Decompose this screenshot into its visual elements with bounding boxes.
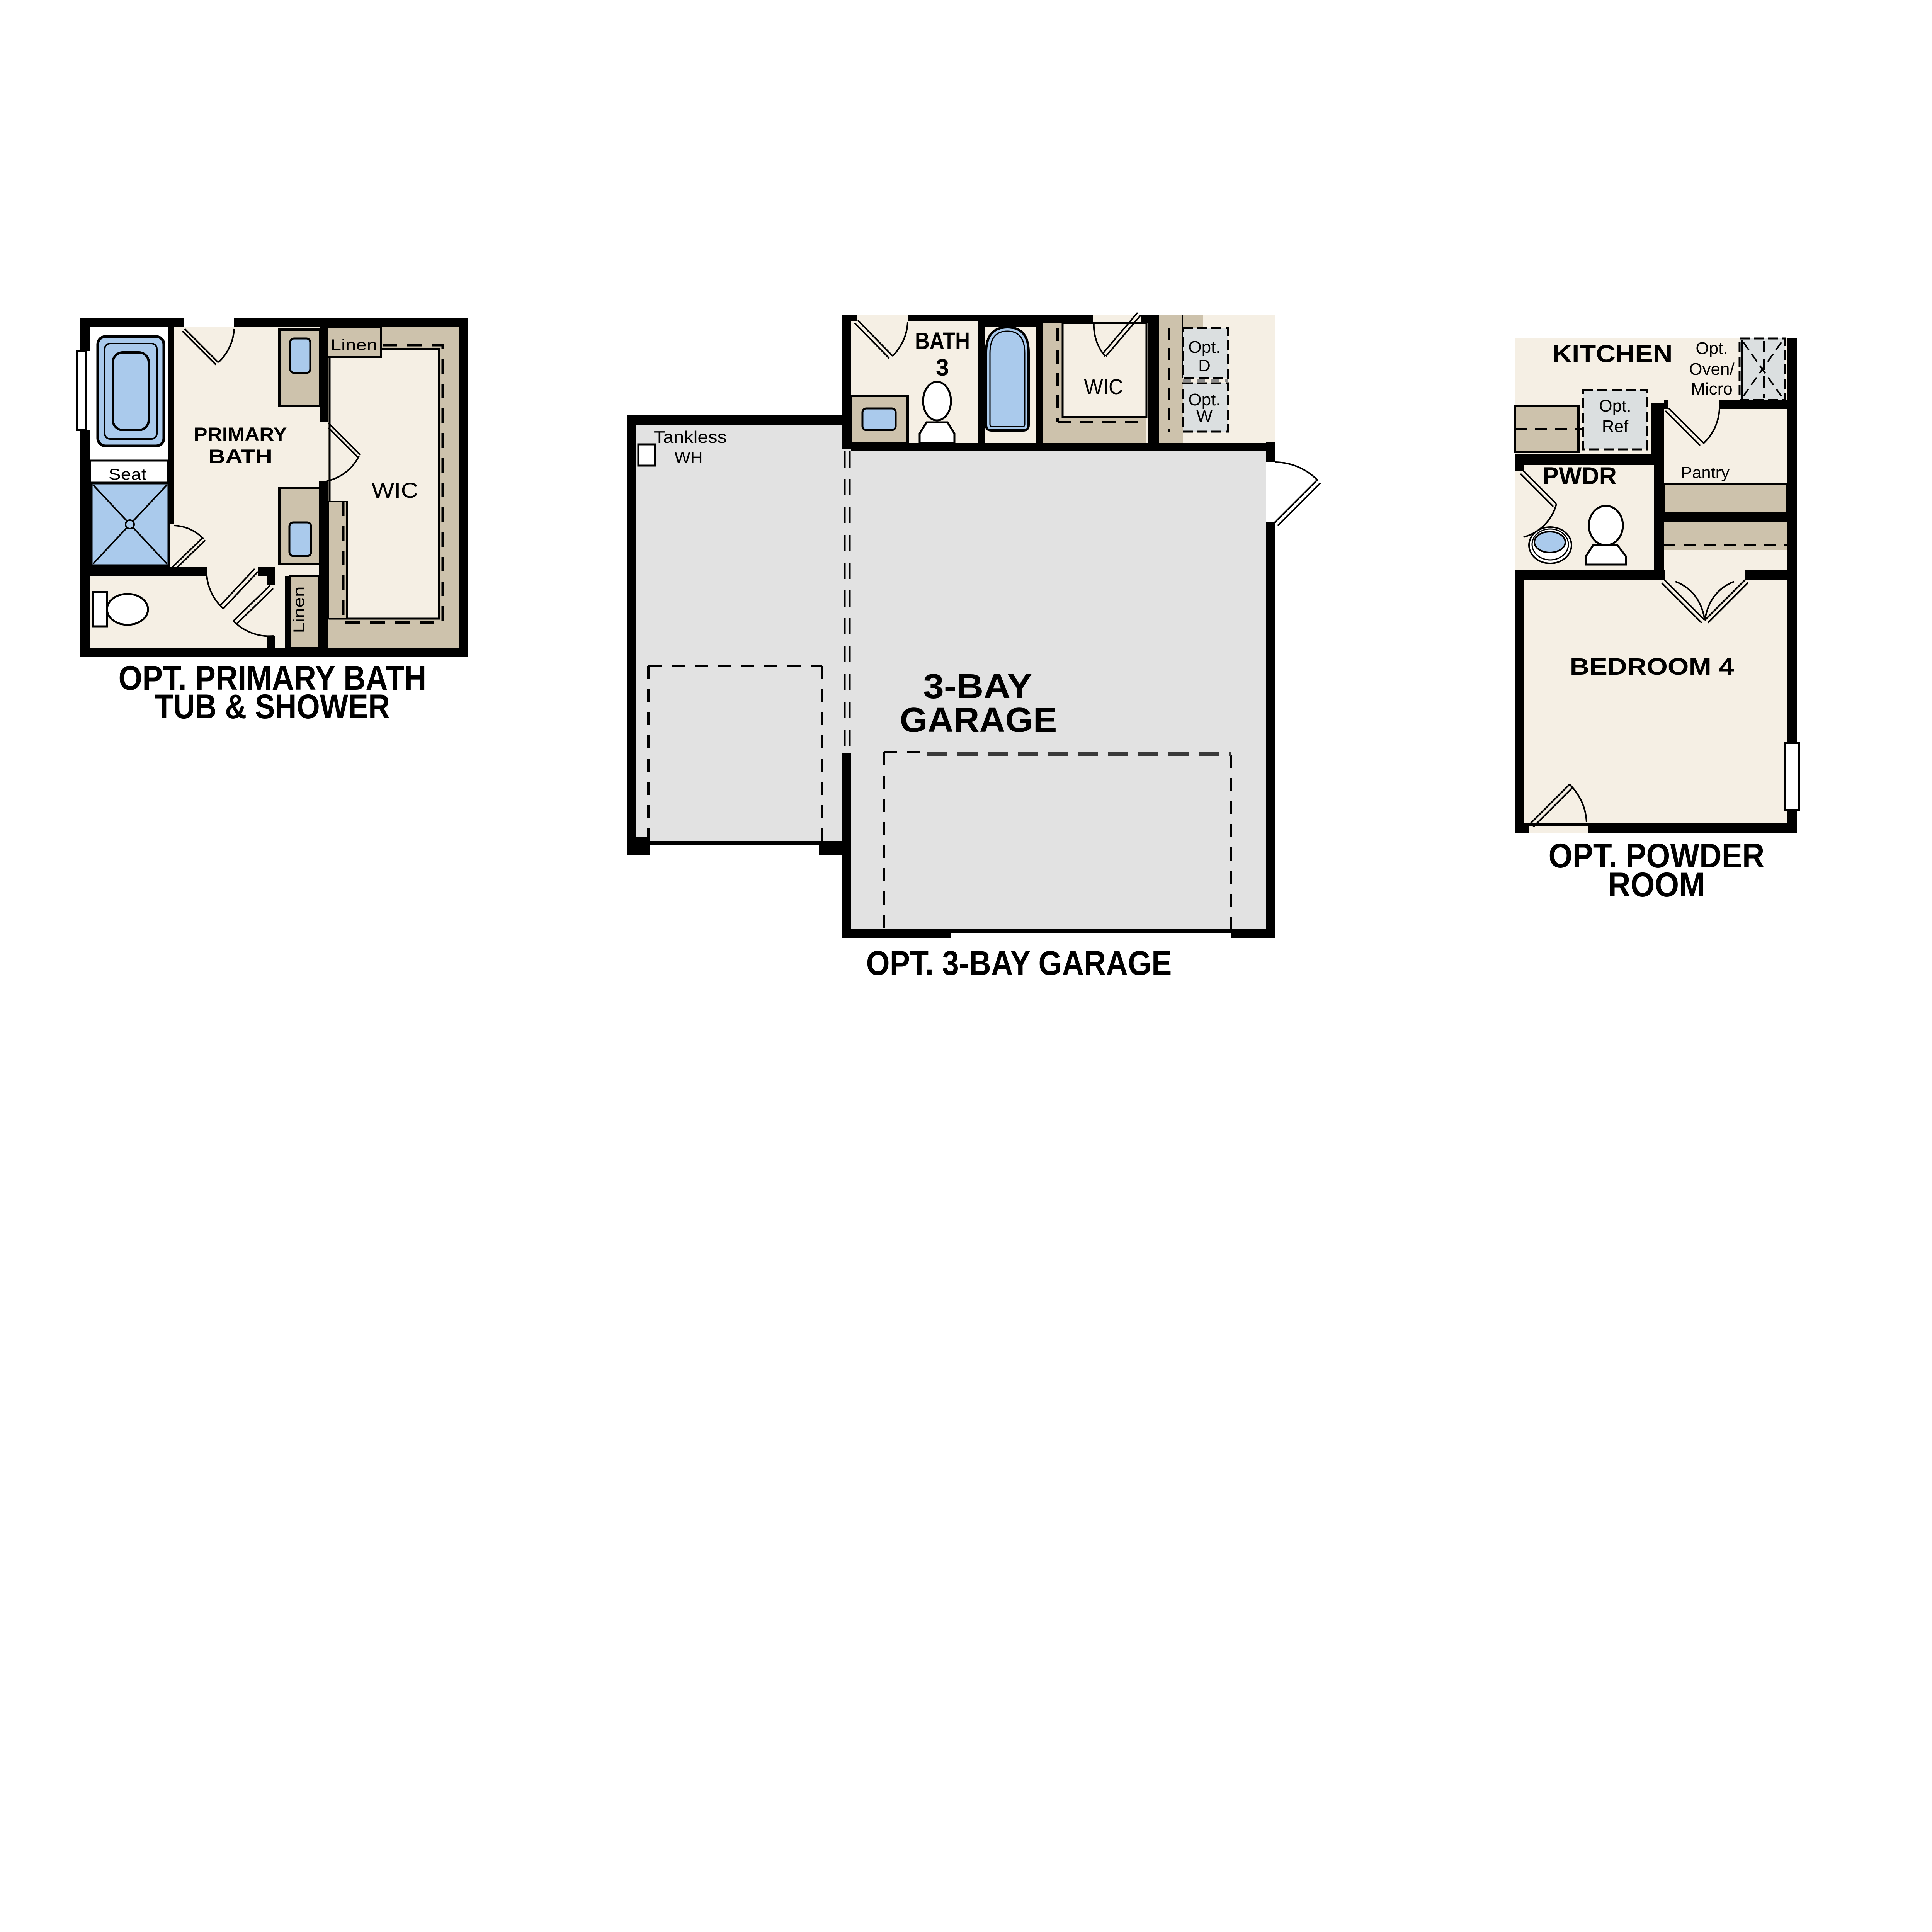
svg-text:WIC: WIC: [372, 478, 418, 502]
svg-text:Tankless: Tankless: [654, 428, 727, 447]
svg-text:Pantry: Pantry: [1681, 463, 1730, 481]
svg-text:Ref: Ref: [1602, 417, 1629, 436]
svg-text:BATH: BATH: [915, 328, 970, 354]
svg-text:PWDR: PWDR: [1543, 463, 1617, 490]
svg-text:Opt.: Opt.: [1188, 390, 1220, 409]
svg-text:WH: WH: [674, 448, 702, 467]
svg-text:Linen: Linen: [291, 587, 308, 633]
svg-text:OPT. 3-BAY GARAGE: OPT. 3-BAY GARAGE: [866, 944, 1172, 982]
svg-text:GARAGE: GARAGE: [900, 701, 1057, 740]
svg-text:BEDROOM 4: BEDROOM 4: [1570, 653, 1734, 680]
svg-text:TUB & SHOWER: TUB & SHOWER: [155, 687, 390, 726]
svg-text:PRIMARY: PRIMARY: [194, 423, 287, 445]
svg-text:W: W: [1196, 407, 1213, 426]
svg-text:Oven/: Oven/: [1689, 360, 1735, 379]
svg-text:Micro: Micro: [1691, 379, 1733, 398]
svg-text:Opt.: Opt.: [1696, 339, 1728, 358]
svg-text:KITCHEN: KITCHEN: [1553, 340, 1673, 367]
svg-text:ROOM: ROOM: [1608, 865, 1705, 904]
svg-text:3: 3: [936, 354, 949, 381]
svg-text:Seat: Seat: [109, 466, 146, 483]
svg-text:3-BAY: 3-BAY: [923, 667, 1032, 706]
svg-text:BATH: BATH: [208, 446, 272, 467]
svg-text:Linen: Linen: [331, 337, 378, 354]
svg-text:Opt.: Opt.: [1599, 396, 1631, 415]
svg-text:WIC: WIC: [1084, 374, 1123, 399]
svg-text:Opt.: Opt.: [1188, 338, 1220, 357]
svg-text:D: D: [1198, 356, 1211, 375]
